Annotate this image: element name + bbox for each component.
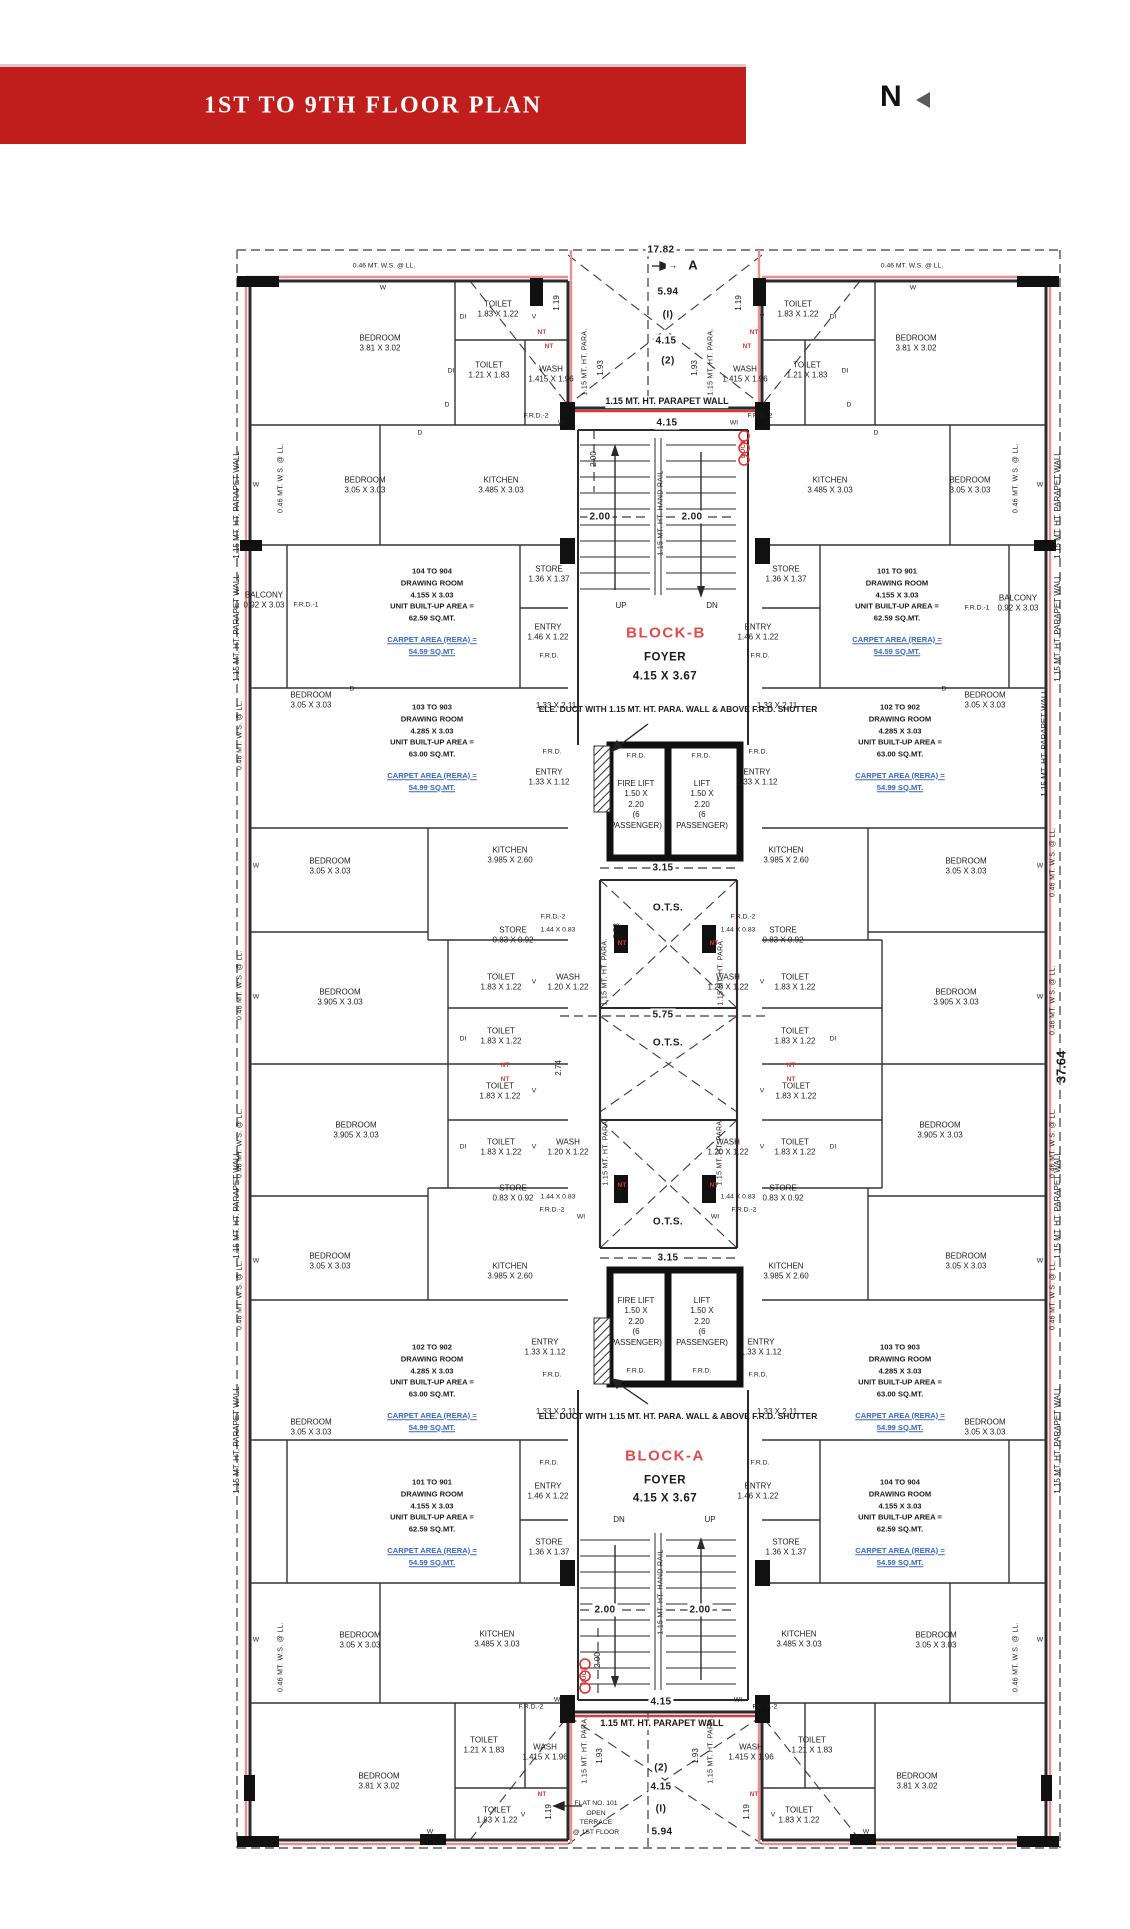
- room-entry: ENTRY 1.46 X 1.22: [738, 623, 779, 644]
- unit-104-top: 104 TO 904 DRAWING ROOM 4.155 X 3.03 UNI…: [390, 566, 474, 625]
- room-toilet: TOILET 1.21 X 1.83: [792, 1736, 833, 1757]
- stair-dn: DN: [706, 601, 718, 611]
- room-store: STORE 1.36 X 1.37: [766, 565, 807, 586]
- block-b-foyer-size: 4.15 X 3.67: [633, 670, 697, 685]
- room-bedroom: BEDROOM 3.905 X 3.03: [917, 1121, 962, 1142]
- tag-v: V: [760, 1088, 765, 1097]
- unit-104-bottom-carpet: CARPET AREA (RERA) = 54.59 SQ.MT.: [855, 1545, 945, 1569]
- tag-nt: NT: [710, 940, 719, 948]
- room-kitchen: KITCHEN 3.485 X 3.03: [478, 476, 523, 497]
- parapet-v: 1.15 MT. HT. PARAPET WALL: [1053, 1386, 1063, 1493]
- dim-144: 1.44 X 0.83: [541, 1194, 576, 1203]
- frd: F.R.D.: [693, 1368, 712, 1377]
- room-entry: ENTRY 1.46 X 1.22: [738, 1482, 779, 1503]
- tag-nt: NT: [710, 1182, 719, 1190]
- frd2: F.R.D.-2: [524, 413, 549, 422]
- room-entry: ENTRY 1.33 X 1.12: [525, 1338, 566, 1359]
- room-bedroom: BEDROOM 3.05 X 3.03: [339, 1631, 380, 1652]
- unit-102-top: 102 TO 902 DRAWING ROOM 4.285 X 3.03 UNI…: [858, 702, 942, 761]
- room-toilet: TOILET 1.83 X 1.22: [775, 1138, 816, 1159]
- room-entry: ENTRY 1.46 X 1.22: [528, 623, 569, 644]
- tag-w: W: [1037, 482, 1043, 491]
- dim-1-top: (I): [661, 309, 676, 322]
- frd2: F.R.D.-2: [540, 1207, 565, 1216]
- tag-d: D: [874, 430, 879, 439]
- room-wash: WASH 1.415 X 1.96: [722, 365, 767, 386]
- wi-tag: WI: [734, 1697, 742, 1706]
- tag-w: W: [253, 482, 259, 491]
- dim-119: 1.19: [734, 295, 744, 311]
- dim-200: 2.00: [679, 511, 704, 524]
- block-a-foyer: FOYER: [644, 1474, 686, 1489]
- frd2: F.R.D.-2: [731, 914, 756, 923]
- room-bedroom: BEDROOM 3.905 X 3.03: [317, 988, 362, 1009]
- frd: F.R.D.: [749, 1372, 768, 1381]
- frd1: F.R.D.-1: [294, 602, 319, 611]
- tag-nt: NT: [750, 329, 759, 337]
- flat-terrace-note: FLAT NO. 101 OPEN TERRACE @ 1ST FLOOR: [573, 1799, 619, 1837]
- dim-overall-width: 17.82: [645, 244, 676, 257]
- para-note: 1.15 MT. HT. PARA.: [601, 1118, 610, 1185]
- dim-594-top: 5.94: [655, 286, 680, 299]
- tag-w: W: [380, 285, 386, 294]
- dim-overall-height: 37.64: [1054, 1051, 1071, 1084]
- floor-plan: 17.82→A5.94(I)4.15(2)1.15 MT. HT. PARAPE…: [0, 0, 1130, 1929]
- dim-193: 1.93: [596, 360, 606, 376]
- room-bedroom: BEDROOM 3.905 X 3.03: [933, 988, 978, 1009]
- ws-v: 0.46 MT. W.S. @ LL.: [1048, 1260, 1057, 1330]
- tag-nt: NT: [750, 1791, 759, 1799]
- tag-v: V: [521, 1812, 526, 1821]
- room-bedroom: BEDROOM 3.05 X 3.03: [964, 691, 1005, 712]
- dim-415-top: 4.15: [653, 335, 678, 348]
- dim-200: 2.00: [589, 451, 599, 467]
- room-balcony: BALCONY 0.92 X 3.03: [244, 591, 285, 612]
- dim-119: 1.19: [544, 1804, 554, 1820]
- block-a-foyer-size: 4.15 X 3.67: [633, 1492, 697, 1507]
- parapet-v: 1.15 MT. HT. PARAPET WALL: [1053, 451, 1063, 558]
- tag-w: W: [427, 1829, 433, 1838]
- frd: F.R.D.: [540, 1460, 559, 1469]
- dim-144: 1.44 X 0.83: [721, 927, 756, 936]
- frd: F.R.D.: [692, 753, 711, 762]
- tag-nt: NT: [501, 1062, 510, 1070]
- tag-nt: NT: [538, 1791, 547, 1799]
- para-note: 1.15 MT. HT. PARA.: [600, 938, 609, 1005]
- tag-v: V: [760, 314, 765, 323]
- block-a-label: BLOCK-A: [625, 1446, 705, 1466]
- frd2: F.R.D.-2: [748, 413, 773, 422]
- parapet-note-top: 1.15 MT. HT. PARAPET WALL: [605, 396, 728, 408]
- dim-415-bot: 4.15: [648, 1696, 673, 1709]
- para-note: 1.15 MT. HT. PARA.: [706, 328, 715, 395]
- duct-label: DUCT: [740, 440, 748, 458]
- parapet-v: 1.15 MT. HT. PARAPET WALL: [1053, 1151, 1063, 1258]
- unit-102-bottom: 102 TO 902 DRAWING ROOM 4.285 X 3.03 UNI…: [390, 1342, 474, 1401]
- frd2: F.R.D.-2: [541, 914, 566, 923]
- ws-note: 0.46 MT. W.S. @ LL.: [881, 263, 943, 272]
- unit-102-top-carpet: CARPET AREA (RERA) = 54.99 SQ.MT.: [855, 770, 945, 794]
- parapet-v: 1.15 MT. HT. PARAPET WALL: [232, 1151, 242, 1258]
- room-wash: WASH 1.20 X 1.22: [708, 1138, 749, 1159]
- unit-103-top-carpet: CARPET AREA (RERA) = 54.99 SQ.MT.: [387, 770, 477, 794]
- tag-di: DI: [460, 1144, 467, 1153]
- tag-di: DI: [830, 1036, 837, 1045]
- unit-101-top: 101 TO 901 DRAWING ROOM 4.155 X 3.03 UNI…: [855, 566, 939, 625]
- unit-104-top-carpet: CARPET AREA (RERA) = 54.59 SQ.MT.: [387, 634, 477, 658]
- room-bedroom: BEDROOM 3.05 X 3.03: [915, 1631, 956, 1652]
- room-bedroom: BEDROOM 3.05 X 3.03: [344, 476, 385, 497]
- tag-v: V: [532, 1144, 537, 1153]
- room-bedroom: BEDROOM 3.05 X 3.03: [309, 857, 350, 878]
- frd: F.R.D.: [749, 749, 768, 758]
- page: 1ST TO 9TH FLOOR PLAN N: [0, 0, 1130, 1929]
- room-entry: ENTRY 1.33 X 1.12: [529, 768, 570, 789]
- room-toilet: TOILET 1.83 X 1.22: [481, 1138, 522, 1159]
- tag-w: W: [1037, 1637, 1043, 1646]
- para-note: 1.15 MT. HT. PARA.: [580, 328, 589, 395]
- tag-w: W: [253, 863, 259, 872]
- dim-144: 1.44 X 0.83: [541, 927, 576, 936]
- tag-d: D: [350, 686, 355, 695]
- tag-nt: NT: [538, 329, 547, 337]
- section-arrow: →: [666, 260, 680, 273]
- block-b-label: BLOCK-B: [626, 623, 706, 643]
- stair-up: UP: [704, 1515, 715, 1525]
- room-entry: ENTRY 1.33 X 1.12: [741, 1338, 782, 1359]
- dim-144: 1.44 X 0.83: [721, 1194, 756, 1203]
- block-b-foyer: FOYER: [644, 651, 686, 666]
- ws-v: 0.46 MT. W.S. @ LL.: [276, 443, 285, 513]
- room-bedroom: BEDROOM 3.05 X 3.03: [309, 1252, 350, 1273]
- tag-di: DI: [460, 1036, 467, 1045]
- wi-tag: WI: [711, 1214, 719, 1223]
- ws-v: 0.46 MT. W.S. @ LL.: [235, 950, 244, 1020]
- parapet-v: 1.15 MT. HT. PARAPET WALL: [232, 574, 242, 681]
- dim-119: 1.19: [552, 295, 562, 311]
- tag-v: V: [532, 314, 537, 323]
- tag-v: V: [532, 1088, 537, 1097]
- tag-nt: NT: [618, 1182, 627, 1190]
- wi-tag: WI: [558, 420, 566, 429]
- para-note: 1.15 MT. HT. PARA.: [715, 1118, 724, 1185]
- tag-d: D: [445, 402, 450, 411]
- room-bedroom: BEDROOM 3.81 X 3.02: [896, 1772, 937, 1793]
- tag-di: DI: [830, 1144, 837, 1153]
- ws-v: 0.46 MT. W.S. @ LL.: [1048, 965, 1057, 1035]
- dim-415-bot2: 4.15: [648, 1781, 673, 1794]
- room-bedroom: BEDROOM 3.81 X 3.02: [895, 334, 936, 355]
- parapet-v: 1.15 MT. HT. PARAPET WALL: [1040, 689, 1050, 796]
- tag-w: W: [1037, 1258, 1043, 1267]
- tag-nt: NT: [787, 1062, 796, 1070]
- ots: O.T.S.: [651, 902, 685, 915]
- room-bedroom: BEDROOM 3.05 X 3.03: [964, 1418, 1005, 1439]
- fire-lift: FIRE LIFT 1.50 X 2.20 (6 PASSENGER): [610, 779, 662, 831]
- tag-di: DI: [830, 314, 837, 323]
- handrail-note: 1.15 MT. HT. HAND RAIL: [656, 1549, 665, 1634]
- dim-2-top: (2): [659, 355, 676, 368]
- room-toilet: TOILET 1.83 X 1.22: [775, 973, 816, 994]
- unit-101-bottom: 101 TO 901 DRAWING ROOM 4.155 X 3.03 UNI…: [390, 1477, 474, 1536]
- dim-315: 3.15: [655, 1252, 680, 1265]
- tag-w: W: [1037, 863, 1043, 872]
- ws-v: 0.46 MT. W.S. @ LL.: [1048, 827, 1057, 897]
- frd2: F.R.D.-2: [753, 1704, 778, 1713]
- room-toilet: TOILET 1.83 X 1.22: [775, 1027, 816, 1048]
- parapet-v: 1.15 MT. HT. PARAPET WALL: [232, 1386, 242, 1493]
- dim-133x211: 1.33 X 2.11: [536, 1407, 576, 1417]
- room-toilet: TOILET 1.83 X 1.22: [778, 300, 819, 321]
- section-a-marker: A: [688, 258, 697, 275]
- dim-133x211: 1.33 X 2.11: [757, 1407, 797, 1417]
- room-kitchen: KITCHEN 3.985 X 2.60: [487, 1262, 532, 1283]
- frd: F.R.D.: [751, 1460, 770, 1469]
- dim-200: 2.00: [593, 1652, 603, 1668]
- parapet-v: 1.15 MT. HT. PARAPET WALL: [1053, 574, 1063, 681]
- ws-v: 0.46 MT. W.S. @ LL.: [1011, 443, 1020, 513]
- dim-193: 1.93: [691, 1748, 701, 1764]
- parapet-note-bot: 1.15 MT. HT. PARAPET WALL: [600, 1718, 723, 1730]
- room-wash: WASH 1.415 X 1.96: [522, 1743, 567, 1764]
- room-store: STORE 0.83 X 0.92: [493, 926, 534, 947]
- room-bedroom: BEDROOM 3.05 X 3.03: [945, 857, 986, 878]
- unit-103-bottom-carpet: CARPET AREA (RERA) = 54.99 SQ.MT.: [855, 1410, 945, 1434]
- room-wash: WASH 1.415 X 1.96: [728, 1743, 773, 1764]
- tag-v: V: [760, 1144, 765, 1153]
- room-bedroom: BEDROOM 3.81 X 3.02: [358, 1772, 399, 1793]
- wi-tag: WI: [730, 420, 738, 429]
- tag-nt: NT: [545, 343, 554, 351]
- parapet-v: 1.15 MT. HT. PARAPET WALL: [232, 451, 242, 558]
- tag-nt: NT: [501, 1076, 510, 1084]
- room-toilet: TOILET 1.83 X 1.22: [776, 1082, 817, 1103]
- room-toilet: TOILET 1.21 X 1.83: [469, 361, 510, 382]
- frd2: F.R.D.-2: [732, 1207, 757, 1216]
- dim-315: 3.15: [650, 862, 675, 875]
- dim-274: 2.74: [554, 1060, 564, 1076]
- tag-w: W: [253, 1258, 259, 1267]
- room-toilet: TOILET 1.83 X 1.22: [779, 1806, 820, 1827]
- stair-up: UP: [615, 601, 626, 611]
- room-kitchen: KITCHEN 3.985 X 2.60: [763, 846, 808, 867]
- room-bedroom: BEDROOM 3.05 X 3.03: [290, 691, 331, 712]
- room-wash: WASH 1.20 X 1.22: [548, 1138, 589, 1159]
- frd: F.R.D.: [543, 749, 562, 758]
- tag-nt: NT: [787, 1076, 796, 1084]
- unit-101-bottom-carpet: CARPET AREA (RERA) = 54.59 SQ.MT.: [387, 1545, 477, 1569]
- frd: F.R.D.: [627, 753, 646, 762]
- room-toilet: TOILET 1.83 X 1.22: [480, 1082, 521, 1103]
- unit-104-bottom: 104 TO 904 DRAWING ROOM 4.155 X 3.03 UNI…: [858, 1477, 942, 1536]
- wi-tag: WI: [577, 1214, 585, 1223]
- tag-v: V: [760, 979, 765, 988]
- tag-di: DI: [448, 368, 455, 377]
- room-wash: WASH 1.415 X 1.96: [528, 365, 573, 386]
- ws-v: 0.46 MT. W.S. @ LL.: [276, 1622, 285, 1692]
- room-entry: ENTRY 1.46 X 1.22: [528, 1482, 569, 1503]
- tag-w: W: [863, 1829, 869, 1838]
- tag-w: W: [253, 994, 259, 1003]
- dim-200: 2.00: [592, 1604, 617, 1617]
- room-bedroom: BEDROOM 3.905 X 3.03: [333, 1121, 378, 1142]
- room-toilet: TOILET 1.83 X 1.22: [481, 973, 522, 994]
- room-kitchen: KITCHEN 3.485 X 3.03: [474, 1630, 519, 1651]
- frd: F.R.D.: [540, 653, 559, 662]
- frd: F.R.D.: [751, 653, 770, 662]
- unit-101-top-carpet: CARPET AREA (RERA) = 54.59 SQ.MT.: [852, 634, 942, 658]
- dim-358: 3.58: [612, 923, 622, 939]
- room-wash: WASH 1.20 X 1.22: [708, 973, 749, 994]
- ws-v: 0.46 MT. W.S. @ LL.: [235, 700, 244, 770]
- room-balcony: BALCONY 0.92 X 3.03: [998, 594, 1039, 615]
- fire-lift: FIRE LIFT 1.50 X 2.20 (6 PASSENGER): [610, 1296, 662, 1348]
- tag-w: W: [1037, 994, 1043, 1003]
- tag-d: D: [847, 402, 852, 411]
- duct-label: DUCT: [581, 1667, 589, 1685]
- tag-w: W: [910, 285, 916, 294]
- room-toilet: TOILET 1.83 X 1.22: [481, 1027, 522, 1048]
- room-store: STORE 1.36 X 1.37: [529, 565, 570, 586]
- room-bedroom: BEDROOM 3.05 X 3.03: [945, 1252, 986, 1273]
- room-bedroom: BEDROOM 3.05 X 3.03: [949, 476, 990, 497]
- room-toilet: TOILET 1.83 X 1.22: [478, 300, 519, 321]
- room-kitchen: KITCHEN 3.485 X 3.03: [807, 476, 852, 497]
- unit-102-bottom-carpet: CARPET AREA (RERA) = 54.99 SQ.MT.: [387, 1410, 477, 1434]
- handrail-note: 1.15 MT. HT. HAND RAIL: [656, 470, 665, 555]
- ws-note: 0.46 MT. W.S. @ LL.: [353, 263, 415, 272]
- room-store: STORE 1.36 X 1.37: [766, 1538, 807, 1559]
- room-toilet: TOILET 1.21 X 1.83: [787, 361, 828, 382]
- ws-v: 0.46 MT. W.S. @ LL.: [235, 1260, 244, 1330]
- tag-v: V: [532, 979, 537, 988]
- wi-tag: WI: [554, 1697, 562, 1706]
- room-bedroom: BEDROOM 3.81 X 3.02: [359, 334, 400, 355]
- unit-103-top: 103 TO 903 DRAWING ROOM 4.285 X 3.03 UNI…: [390, 702, 474, 761]
- frd1: F.R.D.-1: [965, 605, 990, 614]
- para-note: 1.15 MT. HT. PARA.: [706, 1716, 715, 1783]
- dim-193: 1.93: [690, 360, 700, 376]
- dim-594-bot: 5.94: [649, 1826, 674, 1839]
- tag-d: D: [418, 430, 423, 439]
- tag-v: V: [771, 1812, 776, 1821]
- room-store: STORE 0.83 X 0.92: [493, 1184, 534, 1205]
- para-note: 1.15 MT. HT. PARA.: [580, 1716, 589, 1783]
- tag-d: D: [942, 686, 947, 695]
- ws-v: 0.46 MT. W.S. @ LL.: [1011, 1622, 1020, 1692]
- dim-200: 2.00: [687, 1604, 712, 1617]
- dim-119: 1.19: [742, 1804, 752, 1820]
- plan-linework: [0, 0, 1130, 1929]
- frd: F.R.D.: [543, 1372, 562, 1381]
- tag-w: W: [253, 1637, 259, 1646]
- room-toilet: TOILET 1.83 X 1.22: [477, 1806, 518, 1827]
- unit-103-bottom: 103 TO 903 DRAWING ROOM 4.285 X 3.03 UNI…: [858, 1342, 942, 1401]
- dim-1-bot: (I): [654, 1803, 669, 1816]
- room-kitchen: KITCHEN 3.485 X 3.03: [776, 1630, 821, 1651]
- tag-nt: NT: [743, 343, 752, 351]
- tag-nt: NT: [618, 940, 627, 948]
- frd2: F.R.D.-2: [519, 1704, 544, 1713]
- lift: LIFT 1.50 X 2.20 (6 PASSENGER): [676, 1296, 728, 1348]
- dim-2-bot: (2): [652, 1762, 669, 1775]
- room-kitchen: KITCHEN 3.985 X 2.60: [763, 1262, 808, 1283]
- room-bedroom: BEDROOM 3.05 X 3.03: [290, 1418, 331, 1439]
- dim-200: 2.00: [587, 511, 612, 524]
- room-entry: ENTRY 1.33 X 1.12: [737, 768, 778, 789]
- dim-415-top2: 4.15: [654, 417, 679, 430]
- room-store: STORE 0.83 X 0.92: [763, 926, 804, 947]
- tag-di: DI: [460, 314, 467, 323]
- room-store: STORE 1.36 X 1.37: [529, 1538, 570, 1559]
- tag-di: DI: [842, 368, 849, 377]
- room-toilet: TOILET 1.21 X 1.83: [464, 1736, 505, 1757]
- room-wash: WASH 1.20 X 1.22: [548, 973, 589, 994]
- dim-193: 1.93: [595, 1748, 605, 1764]
- ele-duct-note: ELE. DUCT WITH 1.15 MT. HT. PARA. WALL &…: [539, 704, 818, 716]
- frd: F.R.D.: [627, 1368, 646, 1377]
- stair-dn: DN: [613, 1515, 625, 1525]
- dim-575: 5.75: [650, 1009, 675, 1022]
- room-kitchen: KITCHEN 3.985 X 2.60: [487, 846, 532, 867]
- ots: O.T.S.: [651, 1216, 685, 1229]
- room-store: STORE 0.83 X 0.92: [763, 1184, 804, 1205]
- lift: LIFT 1.50 X 2.20 (6 PASSENGER): [676, 779, 728, 831]
- ots: O.T.S.: [651, 1037, 685, 1050]
- dim-358: 3.58: [614, 1188, 624, 1204]
